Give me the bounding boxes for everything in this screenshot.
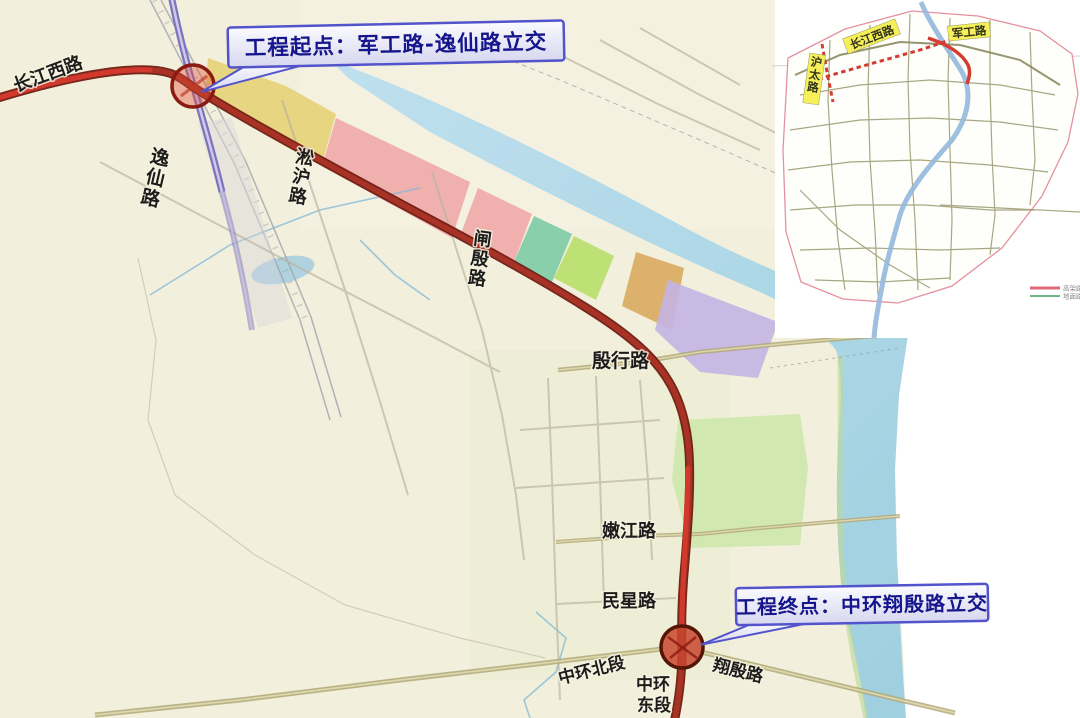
inset-map: 长江西路 军工路 沪太路 高架路 地面路 <box>772 0 1080 338</box>
end-callout-text: 工程终点：中环翔殷路立交 <box>736 591 988 619</box>
label-minxing-road: 民星路 <box>602 590 657 612</box>
legend-label-ground: 地面路 <box>1063 292 1080 301</box>
map-image: 长江西路 逸仙路 淞沪路 闸殷路 殷行路 嫩江路 民星路 中环北段 中环 东段 … <box>0 0 1080 718</box>
start-interchange-marker <box>172 65 214 107</box>
label-middle-ring-east-2: 东段 <box>637 695 671 716</box>
end-interchange-marker <box>661 626 703 668</box>
legend-label-elevated: 高架路 <box>1063 284 1080 293</box>
label-middle-ring-east-1: 中环 <box>636 674 670 695</box>
label-nenjiang-road: 嫩江路 <box>602 520 657 542</box>
label-yinhang-road: 殷行路 <box>592 349 650 372</box>
map-edge-white <box>895 335 1080 718</box>
project-map-figure: 长江西路 逸仙路 淞沪路 闸殷路 殷行路 嫩江路 民星路 中环北段 中环 东段 … <box>0 0 1080 718</box>
